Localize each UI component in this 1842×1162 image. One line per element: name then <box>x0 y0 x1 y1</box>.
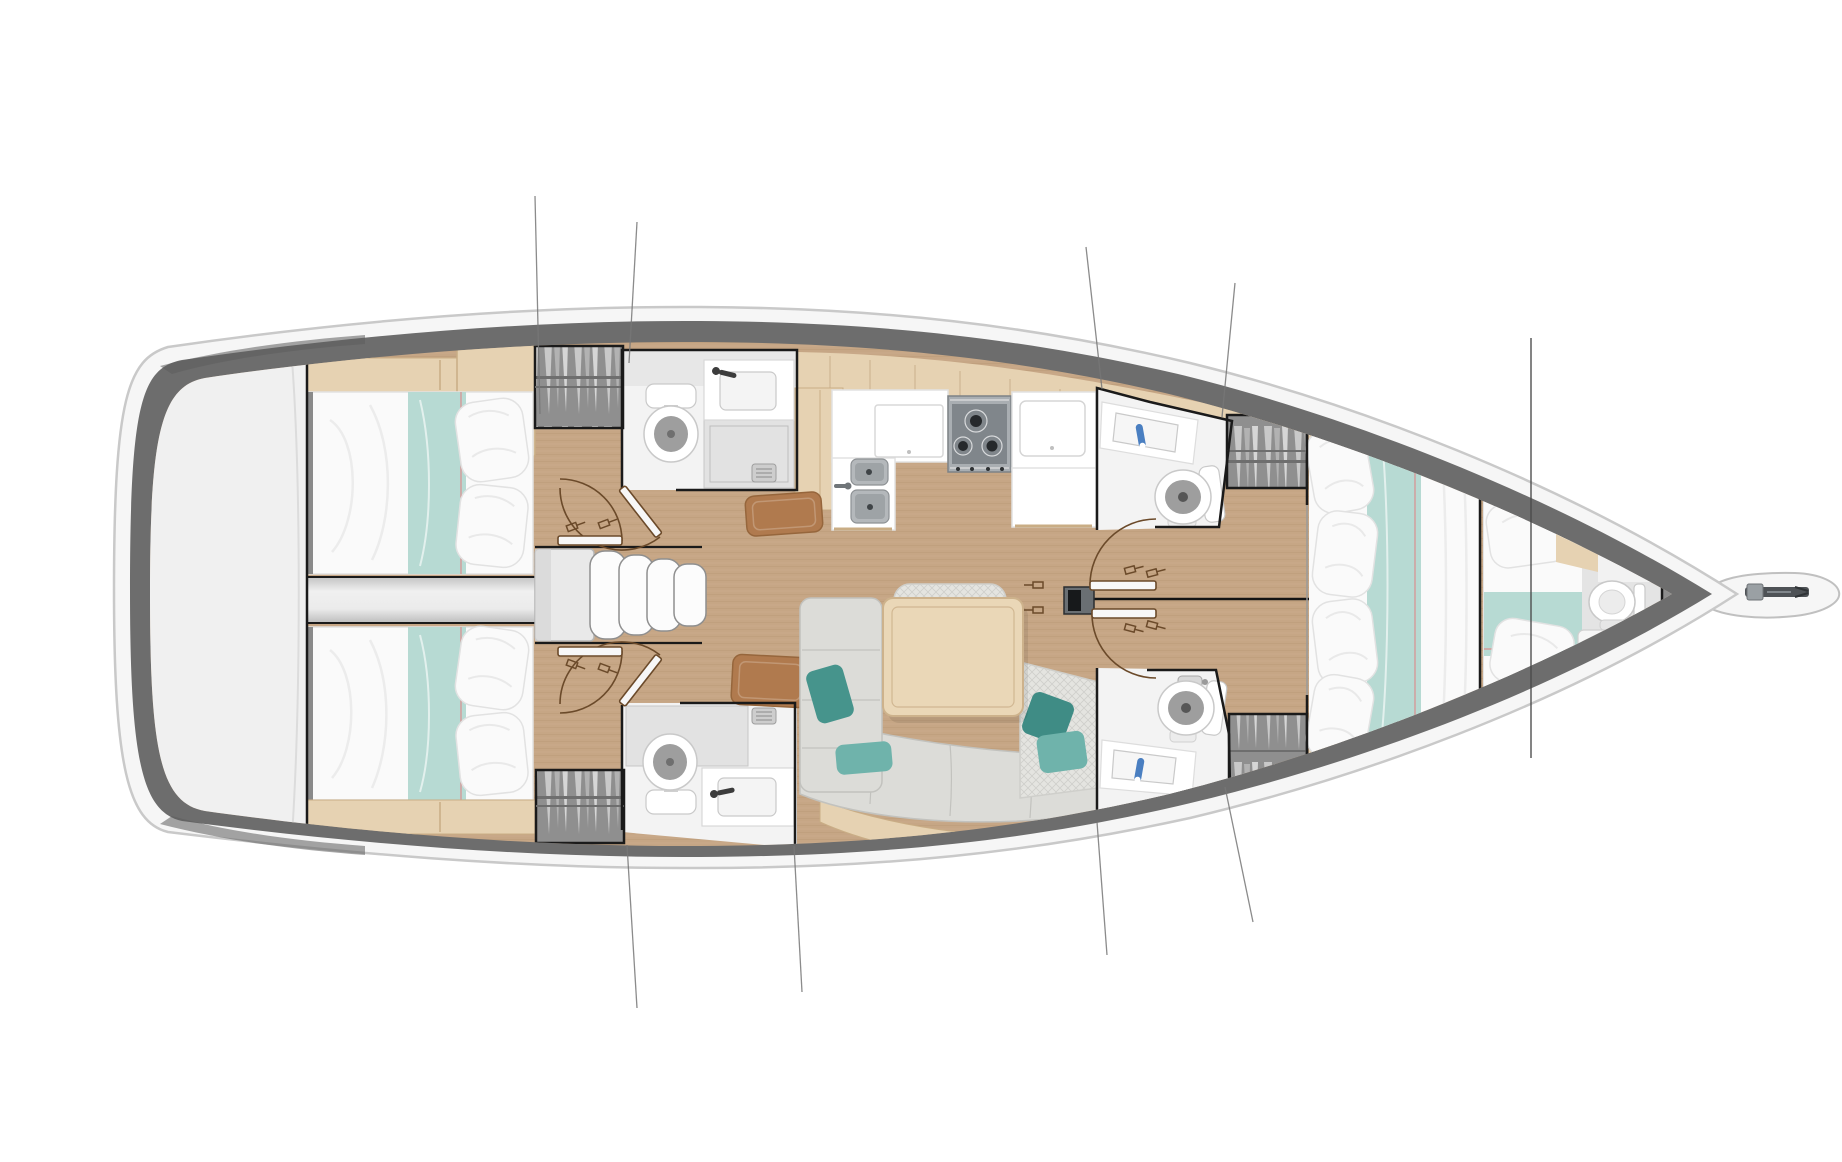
floor-plan-page: Sailboat interior layout — overhead floo… <box>0 0 1842 1162</box>
dining-table <box>883 598 1028 723</box>
toilet-icon <box>643 734 697 814</box>
interior <box>148 330 1705 862</box>
sink <box>702 768 794 826</box>
wardrobe <box>535 346 623 428</box>
head-aft-starboard <box>622 703 797 848</box>
toilet-icon <box>644 384 698 462</box>
shroud-line <box>1097 822 1107 955</box>
head-aft-port <box>622 350 797 490</box>
shroud-line <box>794 846 802 992</box>
floor-plan-svg: Sailboat interior layout — overhead floo… <box>0 0 1842 1162</box>
shroud-line <box>1225 787 1253 922</box>
stove <box>948 396 1011 472</box>
stern-deck <box>148 340 307 850</box>
steps <box>590 551 706 639</box>
leather-mat <box>731 654 810 708</box>
refrigerator-counter <box>1012 392 1096 527</box>
teal-runner <box>408 627 466 800</box>
shroud-line <box>627 845 637 1008</box>
aft-cabin-starboard <box>307 624 535 834</box>
leather-mat <box>745 491 824 536</box>
wardrobe <box>536 770 624 843</box>
shower-pan <box>704 420 794 488</box>
sink <box>704 360 794 420</box>
aft-cabin-port <box>307 345 535 574</box>
